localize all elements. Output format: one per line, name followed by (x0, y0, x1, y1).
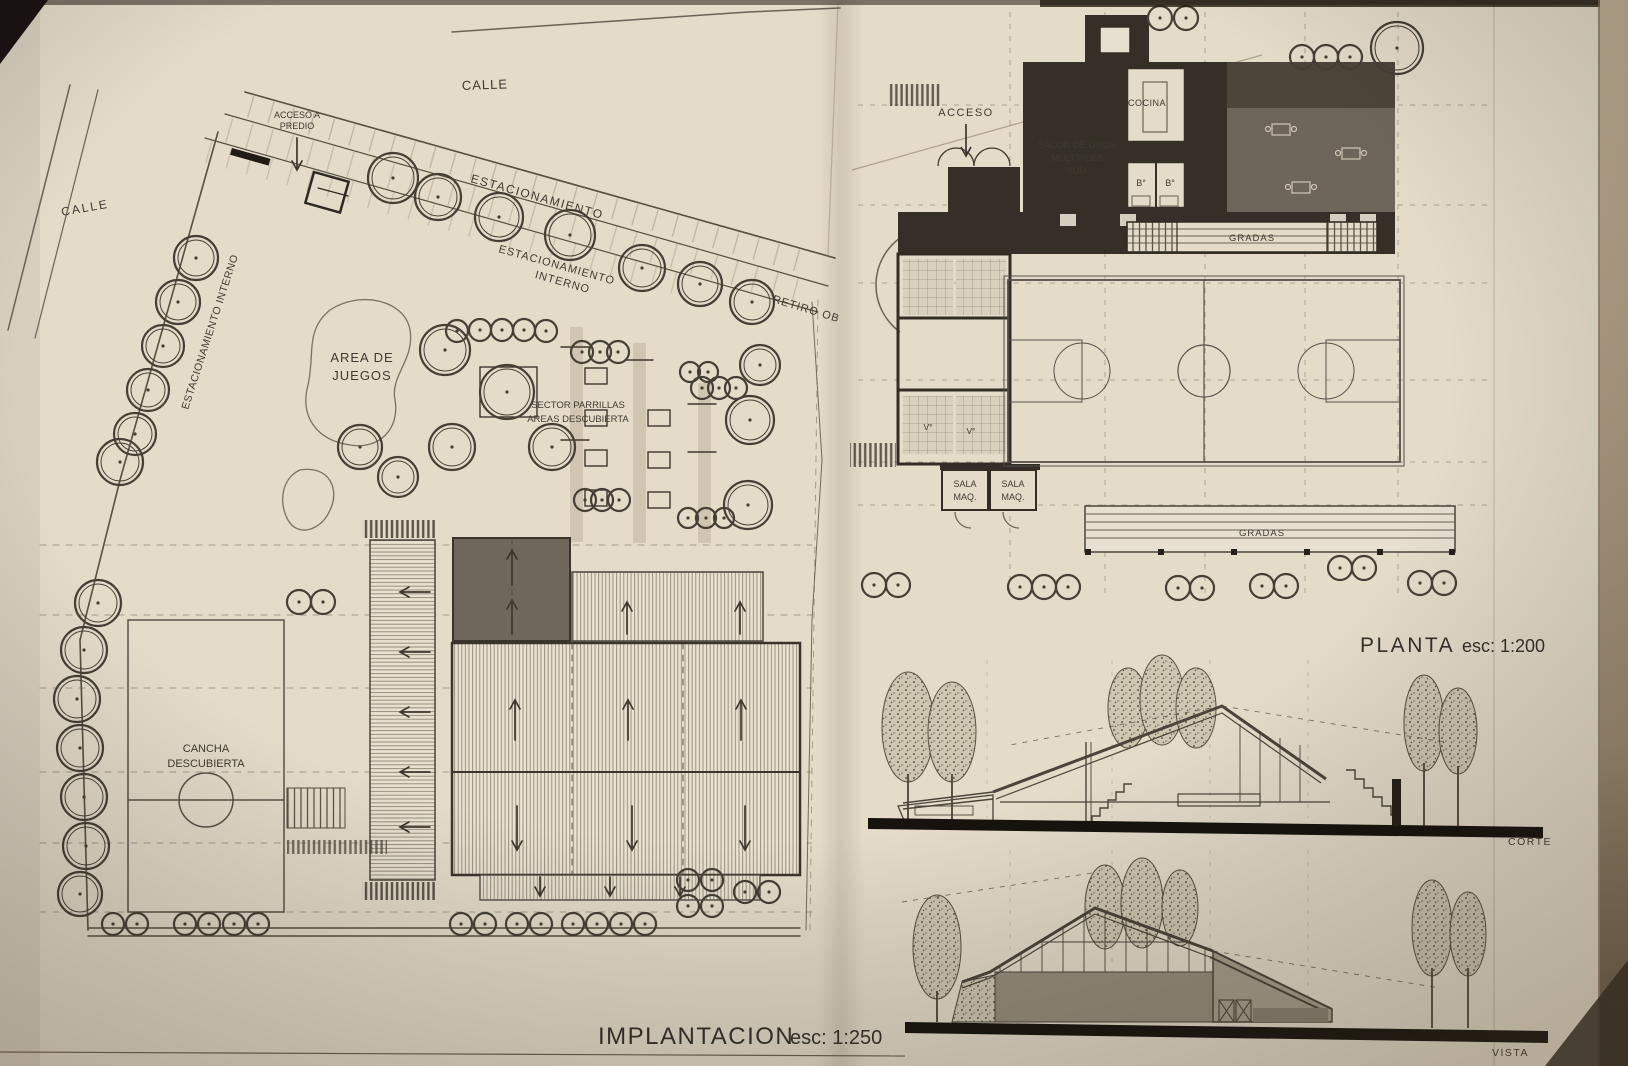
photo-artifacts (0, 0, 1628, 1066)
drawing-canvas: CALLE CALLE ACCESO A PREDIO ESTACIONAMIE… (0, 0, 1628, 1066)
architectural-sheet: CALLE CALLE ACCESO A PREDIO ESTACIONAMIE… (0, 0, 1628, 1066)
